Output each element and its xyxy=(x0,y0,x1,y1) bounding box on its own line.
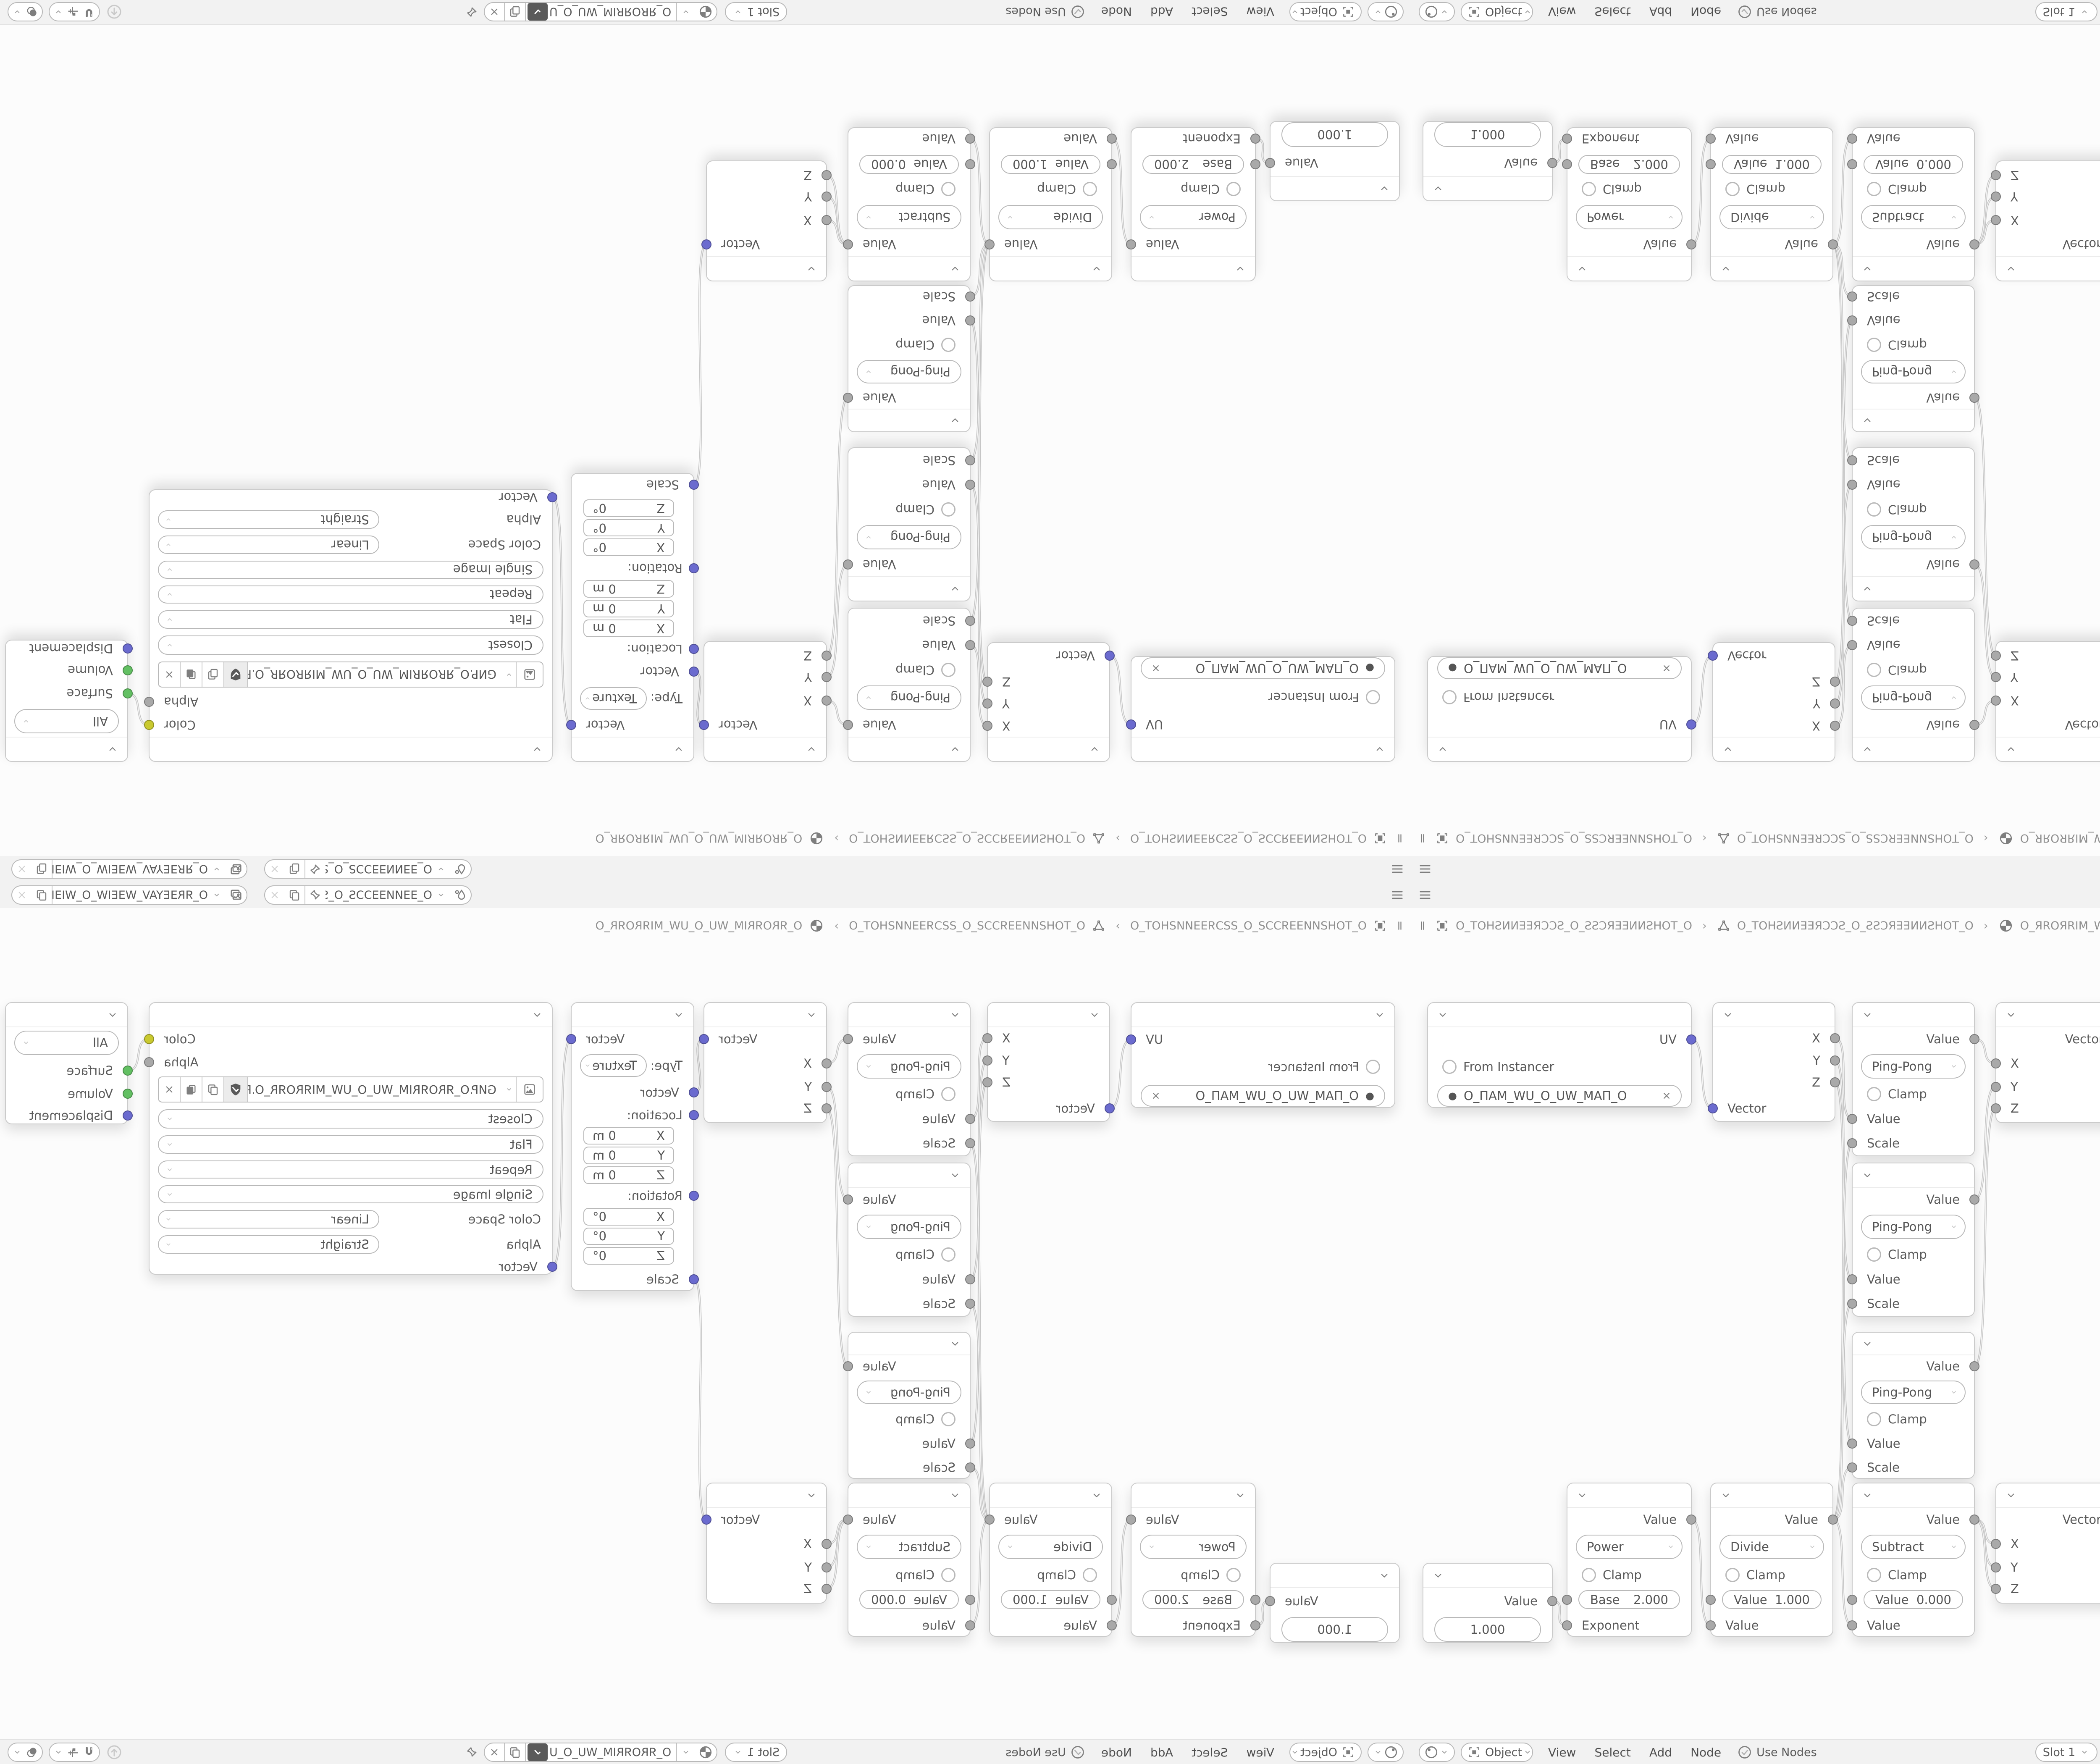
menu-node[interactable]: Node xyxy=(1101,5,1132,19)
node-collapse-chevron[interactable] xyxy=(1423,176,1552,200)
dropdown[interactable]: Ping-Pong xyxy=(1861,1215,1966,1239)
value-field[interactable]: 1.000 xyxy=(1434,122,1541,147)
copy-icon[interactable] xyxy=(202,1077,224,1102)
input-socket-exponent[interactable] xyxy=(1562,1620,1572,1630)
input-socket-scale[interactable] xyxy=(1847,1299,1857,1309)
output-socket-value[interactable] xyxy=(843,1361,853,1371)
dropdown[interactable]: All xyxy=(14,1031,119,1055)
auto-render-icon[interactable] xyxy=(106,1744,123,1761)
input-socket-y[interactable] xyxy=(1991,1082,2001,1092)
value-field[interactable]: Value0.000 xyxy=(859,1590,959,1609)
output-socket-x[interactable] xyxy=(1830,721,1840,731)
checkbox[interactable] xyxy=(941,1087,955,1101)
copy-icon[interactable] xyxy=(31,860,52,878)
node-collapse-chevron[interactable] xyxy=(1713,1003,1835,1027)
input-socket-scale[interactable] xyxy=(1847,455,1857,465)
dropdown[interactable]: Straight xyxy=(158,510,379,529)
output-socket-value[interactable] xyxy=(1828,1515,1838,1525)
checkbox[interactable] xyxy=(1442,1060,1457,1074)
vector-component-field[interactable]: X0° xyxy=(583,539,674,556)
close-icon[interactable] xyxy=(1661,1090,1681,1102)
shader-type-dropdown[interactable]: Object xyxy=(1461,2,1533,21)
math-divide-node[interactable]: ValueDivideClampValue1.000Value xyxy=(1710,127,1833,281)
node-collapse-chevron[interactable] xyxy=(1711,1483,1832,1508)
use-nodes-checkbox[interactable]: Use Nodes xyxy=(1737,4,1817,19)
material-name[interactable]: O_ЯROЯRIM_WU_O_UW_MIЯROЯR_O xyxy=(549,1743,677,1761)
checkbox[interactable] xyxy=(941,1412,955,1426)
dropdown[interactable]: Subtract xyxy=(1861,205,1966,229)
node-collapse-chevron[interactable] xyxy=(1853,1483,1974,1508)
overlays-control[interactable] xyxy=(8,2,43,21)
node-collapse-chevron[interactable] xyxy=(707,1483,826,1508)
input-socket-x[interactable] xyxy=(822,1058,832,1068)
output-socket-value[interactable] xyxy=(1686,239,1696,249)
uvmap-name-field[interactable]: ●O_ПAM_WU_O_UW_MAП_O xyxy=(1437,1085,1682,1107)
dropdown[interactable]: Texture xyxy=(580,687,647,710)
input-socket-valuein[interactable] xyxy=(1107,134,1117,144)
output-socket-value[interactable] xyxy=(1126,239,1136,249)
input-socket-x[interactable] xyxy=(1991,215,2001,225)
input-socket-valuein[interactable] xyxy=(965,1114,975,1124)
copy-icon[interactable] xyxy=(202,662,224,687)
math-subtract-node[interactable]: ValueSubtractClampValue0.000Value xyxy=(1852,127,1975,281)
chevron-down-icon[interactable] xyxy=(208,886,226,904)
checkbox[interactable] xyxy=(1867,1568,1881,1582)
checkbox[interactable] xyxy=(941,338,955,352)
output-socket-alpha[interactable] xyxy=(144,1057,154,1067)
input-socket-exponent[interactable] xyxy=(1250,134,1260,144)
value-field[interactable]: 1.000 xyxy=(1281,1617,1388,1642)
material-output-node[interactable]: AllSurfaceVolumeDisplacement xyxy=(5,1002,128,1124)
input-socket-base[interactable] xyxy=(1250,160,1260,170)
vector-component-field[interactable]: Z0 m xyxy=(583,580,674,598)
output-socket-y[interactable] xyxy=(982,699,992,709)
combine-xyz-node[interactable]: VectorXYZ xyxy=(703,1002,827,1123)
uvmap-name-field[interactable]: ●O_ПAM_WU_O_UW_MAП_O xyxy=(1141,657,1385,679)
input-socket-z[interactable] xyxy=(1991,170,2001,180)
output-socket-color[interactable] xyxy=(144,1034,154,1044)
dropdown[interactable]: Power xyxy=(1576,205,1683,229)
vector-component-field[interactable]: X0 m xyxy=(583,620,674,638)
vector-component-field[interactable]: Y0 m xyxy=(583,600,674,618)
combine-xyz-node[interactable]: VectorXYZ xyxy=(1995,1002,2100,1123)
pin-icon[interactable] xyxy=(305,860,325,878)
image-selector[interactable]: GИP.O_ЯROЯRIM_WU_O_UW_MIЯROЯR_O.PNG xyxy=(158,661,543,688)
vector-component-field[interactable]: Y0° xyxy=(583,520,674,537)
dropdown[interactable]: Ping-Pong xyxy=(1861,525,1966,549)
checkbox[interactable] xyxy=(1725,1568,1740,1582)
math-pingpong-node[interactable]: ValuePing-PongClampValueScale xyxy=(848,1163,971,1317)
dropdown[interactable]: Ping-Pong xyxy=(857,685,961,710)
node-collapse-chevron[interactable] xyxy=(1853,1163,1974,1188)
output-socket-value[interactable] xyxy=(1265,158,1275,168)
node-collapse-chevron[interactable] xyxy=(988,1003,1109,1027)
checkbox[interactable] xyxy=(1582,1568,1596,1582)
checkbox[interactable] xyxy=(1226,182,1241,197)
input-socket-valuein[interactable] xyxy=(965,1620,975,1630)
node-collapse-chevron[interactable] xyxy=(572,737,693,761)
uv-map-node[interactable]: UVFrom Instancer●O_ПAM_WU_O_UW_MAП_O xyxy=(1131,656,1395,762)
shader-type-dropdown[interactable]: Object xyxy=(1461,1743,1533,1762)
node-collapse-chevron[interactable] xyxy=(707,256,826,281)
dropdown[interactable]: Ping-Pong xyxy=(857,1381,961,1404)
dropdown[interactable]: Divide xyxy=(998,205,1103,229)
node-collapse-chevron[interactable] xyxy=(150,737,552,761)
input-socket-vector[interactable] xyxy=(1708,1103,1718,1113)
dropdown[interactable]: Single Image xyxy=(158,561,543,579)
input-socket-base[interactable] xyxy=(1250,1595,1260,1605)
input-socket-scale[interactable] xyxy=(1847,1138,1857,1148)
dropdown[interactable]: Ping-Pong xyxy=(857,360,961,383)
input-socket-displacement[interactable] xyxy=(123,1110,133,1121)
node-collapse-chevron[interactable] xyxy=(1428,1003,1691,1027)
chevron-down-icon[interactable] xyxy=(12,1747,23,1758)
output-socket-value[interactable] xyxy=(1969,1361,1979,1371)
dropdown[interactable]: Flat xyxy=(158,610,543,629)
copy-icon[interactable] xyxy=(284,860,305,878)
hamburger-menu-icon[interactable] xyxy=(1417,861,1433,877)
menu-view[interactable]: View xyxy=(1548,1746,1576,1759)
node-collapse-chevron[interactable] xyxy=(848,1333,970,1355)
checkbox[interactable] xyxy=(941,182,955,197)
input-socket-x[interactable] xyxy=(822,215,832,225)
math-pingpong-node[interactable]: ValuePing-PongClampValueScale xyxy=(848,608,971,762)
node-editor-canvas[interactable]: O_TOHƧИИƎƎЯƆƆƧ_O_ƧƧƆЯƎƎИИƧHOT_O › O_TOHƧ… xyxy=(0,908,1411,1739)
input-socket-valuein[interactable] xyxy=(965,1274,975,1284)
input-socket-x[interactable] xyxy=(1991,1539,2001,1549)
input-socket-valuein[interactable] xyxy=(1706,134,1716,144)
input-socket-volume[interactable] xyxy=(123,665,133,675)
input-socket-y[interactable] xyxy=(822,1562,832,1572)
fake-user-shield-icon[interactable] xyxy=(528,1743,548,1761)
input-socket-scale[interactable] xyxy=(689,1274,699,1284)
input-socket-scale[interactable] xyxy=(965,1462,975,1473)
output-socket-value[interactable] xyxy=(843,393,853,403)
node-collapse-chevron[interactable] xyxy=(1131,1483,1255,1508)
scene-datablock-selector[interactable]: O_ƎƎИИƎƎƆƆS_O_SSƆƆƎƎИ… xyxy=(264,859,472,879)
image-selector[interactable]: GИP.O_ЯROЯRIM_WU_O_UW_MIЯROЯR_O.PNG xyxy=(158,1076,543,1102)
checkbox[interactable] xyxy=(1725,182,1740,197)
output-socket-value[interactable] xyxy=(1686,1515,1696,1525)
node-collapse-chevron[interactable] xyxy=(1567,256,1691,281)
menu-node[interactable]: Node xyxy=(1101,1746,1132,1759)
copy-icon[interactable] xyxy=(505,1743,526,1761)
output-socket-value[interactable] xyxy=(1547,1596,1557,1606)
use-nodes-checkbox[interactable]: Use Nodes xyxy=(1005,1745,1085,1760)
input-socket-v1[interactable] xyxy=(1847,160,1857,170)
value-node[interactable]: Value1.000 xyxy=(1423,121,1553,201)
input-socket-scale[interactable] xyxy=(689,480,699,490)
dropdown[interactable]: Power xyxy=(1140,1535,1247,1559)
checkbox[interactable] xyxy=(1867,663,1881,677)
output-socket-vector[interactable] xyxy=(566,1034,576,1044)
menu-view[interactable]: View xyxy=(1548,5,1576,19)
close-icon[interactable] xyxy=(159,1077,181,1102)
node-collapse-chevron[interactable] xyxy=(848,1483,970,1508)
value-field[interactable]: 1.000 xyxy=(1434,1617,1541,1642)
output-socket-uv[interactable] xyxy=(1686,1034,1696,1045)
node-collapse-chevron[interactable] xyxy=(1996,1483,2100,1508)
output-socket-value[interactable] xyxy=(1969,1194,1979,1205)
input-socket-displacement[interactable] xyxy=(123,644,133,654)
input-socket-location[interactable] xyxy=(689,1110,699,1120)
input-socket-y[interactable] xyxy=(822,192,832,202)
close-icon[interactable] xyxy=(1142,662,1162,674)
node-collapse-chevron[interactable] xyxy=(1996,737,2100,761)
close-icon[interactable] xyxy=(1661,662,1681,674)
input-socket-valuein[interactable] xyxy=(1847,1620,1857,1630)
input-socket-exponent[interactable] xyxy=(1562,134,1572,144)
math-divide-node[interactable]: ValueDivideClampValue1.000Value xyxy=(1710,1483,1833,1637)
output-socket-value[interactable] xyxy=(1969,1515,1979,1525)
checkbox[interactable] xyxy=(1867,1087,1881,1101)
output-socket-value[interactable] xyxy=(843,1194,853,1205)
output-socket-value[interactable] xyxy=(1969,559,1979,570)
node-collapse-chevron[interactable] xyxy=(572,1003,693,1027)
input-socket-z[interactable] xyxy=(822,651,832,661)
shader-type-dropdown[interactable]: Object xyxy=(1289,2,1362,21)
material-output-node[interactable]: AllSurfaceVolumeDisplacement xyxy=(5,640,128,762)
dropdown[interactable]: Repeat xyxy=(158,585,543,604)
math-power-node[interactable]: ValuePowerClampBase2.000Exponent xyxy=(1567,127,1692,281)
output-socket-value[interactable] xyxy=(1969,720,1979,730)
grip-icon[interactable] xyxy=(1394,832,1406,845)
checkbox[interactable] xyxy=(1083,182,1097,197)
shader-type-dropdown[interactable]: Object xyxy=(1289,1743,1362,1762)
image-texture-node[interactable]: ColorAlpha GИP.O_ЯROЯRIM_WU_O_UW_MIЯROЯR… xyxy=(149,1002,553,1275)
close-icon[interactable] xyxy=(265,886,284,904)
input-socket-volume[interactable] xyxy=(123,1089,133,1099)
output-socket-value[interactable] xyxy=(984,1515,995,1525)
output-socket-value[interactable] xyxy=(843,559,853,570)
output-socket-x[interactable] xyxy=(982,1033,992,1043)
output-socket-vector[interactable] xyxy=(566,720,576,730)
editor-type-button[interactable] xyxy=(1368,2,1404,21)
output-socket-vector[interactable] xyxy=(701,1515,711,1525)
overlays-icon[interactable] xyxy=(25,5,39,18)
output-socket-value[interactable] xyxy=(843,720,853,730)
node-collapse-chevron[interactable] xyxy=(848,576,970,601)
dropdown[interactable]: Ping-Pong xyxy=(857,525,961,549)
input-socket-v1[interactable] xyxy=(1706,160,1716,170)
math-pingpong-node[interactable]: ValuePing-PongClampValueScale xyxy=(848,1002,971,1156)
separate-xyz-node[interactable]: XYZVector xyxy=(1712,1002,1835,1122)
input-socket-v1[interactable] xyxy=(1107,1595,1117,1605)
input-socket-y[interactable] xyxy=(1991,1562,2001,1572)
input-socket-valuein[interactable] xyxy=(1847,480,1857,490)
input-socket-rotation[interactable] xyxy=(689,563,699,573)
vector-component-field[interactable]: Y0° xyxy=(583,1228,674,1245)
grip-icon[interactable] xyxy=(1416,832,1429,845)
input-socket-vectorin[interactable] xyxy=(689,667,699,677)
output-socket-z[interactable] xyxy=(982,677,992,687)
checkbox[interactable] xyxy=(1867,1412,1881,1426)
node-collapse-chevron[interactable] xyxy=(1131,737,1394,761)
slot-dropdown[interactable]: Slot 1 xyxy=(2035,2,2097,21)
node-collapse-chevron[interactable] xyxy=(1713,737,1835,761)
snapping-control[interactable] xyxy=(49,2,100,21)
input-socket-y[interactable] xyxy=(822,1082,832,1092)
node-editor-canvas[interactable]: O_TOHƧИИƎƎЯƆƆƧ_O_ƧƧƆЯƎƎИИƧHOT_O › O_TOHƧ… xyxy=(0,25,1411,856)
input-socket-scale[interactable] xyxy=(965,455,975,465)
input-socket-z[interactable] xyxy=(822,170,832,180)
input-socket-base[interactable] xyxy=(1562,160,1572,170)
input-socket-v1[interactable] xyxy=(1847,1595,1857,1605)
node-collapse-chevron[interactable] xyxy=(848,256,970,281)
input-socket-scale[interactable] xyxy=(1847,291,1857,302)
math-pingpong-node[interactable]: ValuePing-PongClampValueScale xyxy=(848,285,971,432)
uvmap-name-field[interactable]: ●O_ПAM_WU_O_UW_MAП_O xyxy=(1437,657,1682,679)
menu-select[interactable]: Select xyxy=(1192,5,1228,19)
math-subtract-node[interactable]: ValueSubtractClampValue0.000Value xyxy=(848,127,971,281)
node-collapse-chevron[interactable] xyxy=(848,737,970,761)
magnet-icon[interactable] xyxy=(82,1746,96,1759)
math-power-node[interactable]: ValuePowerClampBase2.000Exponent xyxy=(1131,1483,1256,1637)
input-socket-vector[interactable] xyxy=(1105,651,1115,661)
output-socket-x[interactable] xyxy=(1830,1033,1840,1043)
input-socket-y[interactable] xyxy=(822,672,832,682)
output-socket-value[interactable] xyxy=(843,239,853,249)
uv-map-node[interactable]: UVFrom Instancer●O_ПAM_WU_O_UW_MAП_O xyxy=(1427,656,1692,762)
node-collapse-chevron[interactable] xyxy=(1270,1564,1399,1588)
input-socket-valuein[interactable] xyxy=(965,640,975,650)
close-icon[interactable] xyxy=(159,662,181,687)
math-divide-node[interactable]: ValueDivideClampValue1.000Value xyxy=(989,1483,1112,1637)
output-socket-y[interactable] xyxy=(982,1055,992,1066)
value-field[interactable]: Value0.000 xyxy=(1864,1590,1963,1609)
menu-node[interactable]: Node xyxy=(1690,1746,1721,1759)
dropdown[interactable]: Subtract xyxy=(857,205,961,229)
node-collapse-chevron[interactable] xyxy=(1567,1483,1691,1508)
input-socket-valuein[interactable] xyxy=(965,315,975,325)
input-socket-v1[interactable] xyxy=(965,1595,975,1605)
hamburger-menu-icon[interactable] xyxy=(1389,887,1405,903)
input-socket-scale[interactable] xyxy=(1847,1462,1857,1473)
image-icon[interactable] xyxy=(517,1077,543,1102)
value-node[interactable]: Value1.000 xyxy=(1270,1563,1400,1643)
node-collapse-chevron[interactable] xyxy=(1996,1003,2100,1027)
dropdown[interactable]: Closest xyxy=(158,635,543,655)
close-icon[interactable] xyxy=(485,1743,505,1761)
dropdown[interactable]: Subtract xyxy=(857,1535,961,1559)
math-pingpong-node[interactable]: ValuePing-PongClampValueScale xyxy=(1852,1002,1975,1156)
duplicate-icon[interactable] xyxy=(181,1077,202,1102)
mapping-node[interactable]: VectorType:TextureVectorLocation:X0 mY0 … xyxy=(571,1002,694,1291)
pin-icon[interactable] xyxy=(465,1746,479,1759)
dropdown[interactable]: Linear xyxy=(158,1210,379,1228)
node-editor-canvas[interactable]: O_TOHƧИИƎƎЯƆƆƧ_O_ƧƧƆЯƎƎИИƧHOT_O › O_TOHƧ… xyxy=(1411,908,2100,1739)
value-field[interactable]: Base2.000 xyxy=(1142,155,1244,174)
input-socket-valuein[interactable] xyxy=(965,480,975,490)
slot-dropdown[interactable]: Slot 1 xyxy=(2035,1743,2097,1762)
dropdown[interactable]: Subtract xyxy=(1861,1535,1966,1559)
node-collapse-chevron[interactable] xyxy=(990,256,1111,281)
input-socket-scale[interactable] xyxy=(965,1299,975,1309)
chevron-down-icon[interactable] xyxy=(432,886,450,904)
input-socket-z[interactable] xyxy=(1991,651,2001,661)
hamburger-menu-icon[interactable] xyxy=(1417,887,1433,903)
node-collapse-chevron[interactable] xyxy=(6,737,127,761)
input-socket-scale[interactable] xyxy=(965,616,975,626)
math-pingpong-node[interactable]: ValuePing-PongClampValueScale xyxy=(1852,1163,1975,1317)
copy-icon[interactable] xyxy=(505,3,526,21)
close-icon[interactable] xyxy=(485,3,505,21)
node-editor-canvas[interactable]: O_TOHƧИИƎƎЯƆƆƧ_O_ƧƧƆЯƎƎИИƧHOT_O › O_TOHƧ… xyxy=(1411,25,2100,856)
input-socket-scale[interactable] xyxy=(965,291,975,302)
math-subtract-node[interactable]: ValueSubtractClampValue0.000Value xyxy=(848,1483,971,1637)
dropdown[interactable]: Ping-Pong xyxy=(1861,360,1966,383)
output-socket-value[interactable] xyxy=(843,1515,853,1525)
combine-xyz-node[interactable]: VectorXYZ xyxy=(1995,1483,2100,1604)
input-socket-rotation[interactable] xyxy=(689,1191,699,1201)
combine-xyz-node[interactable]: VectorXYZ xyxy=(706,160,827,281)
dropdown[interactable]: Ping-Pong xyxy=(857,1215,961,1239)
output-socket-vector[interactable] xyxy=(699,1034,709,1044)
copy-icon[interactable] xyxy=(31,886,52,904)
math-pingpong-node[interactable]: ValuePing-PongClampValueScale xyxy=(1852,1332,1975,1479)
value-field[interactable]: Value1.000 xyxy=(1722,155,1822,174)
uvmap-name-field[interactable]: ●O_ПAM_WU_O_UW_MAП_O xyxy=(1141,1085,1385,1107)
output-socket-value[interactable] xyxy=(1828,239,1838,249)
dropdown[interactable]: Divide xyxy=(1719,205,1824,229)
chevron-down-icon[interactable] xyxy=(53,6,64,17)
input-socket-x[interactable] xyxy=(1991,696,2001,706)
uv-map-node[interactable]: UVFrom Instancer●O_ПAM_WU_O_UW_MAП_O xyxy=(1131,1002,1395,1108)
input-socket-vector[interactable] xyxy=(1708,651,1718,661)
value-field[interactable]: Value1.000 xyxy=(1722,1590,1822,1609)
separate-xyz-node[interactable]: XYZVector xyxy=(1712,642,1835,762)
chevron-down-icon[interactable] xyxy=(53,1747,64,1758)
checkbox[interactable] xyxy=(941,502,955,517)
input-socket-vector[interactable] xyxy=(547,492,557,502)
input-socket-v1[interactable] xyxy=(1107,160,1117,170)
chevron-down-icon[interactable] xyxy=(677,3,695,21)
pin-icon[interactable] xyxy=(465,5,479,18)
checkbox[interactable] xyxy=(1867,182,1881,197)
input-socket-valuein[interactable] xyxy=(1847,1274,1857,1284)
input-socket-valuein[interactable] xyxy=(965,1438,975,1449)
output-socket-uv[interactable] xyxy=(1126,719,1136,730)
input-socket-valuein[interactable] xyxy=(1847,640,1857,650)
input-socket-exponent[interactable] xyxy=(1250,1620,1260,1630)
chevron-down-icon[interactable] xyxy=(208,860,226,878)
menu-add[interactable]: Add xyxy=(1649,1746,1672,1759)
node-collapse-chevron[interactable] xyxy=(1853,576,1974,601)
node-collapse-chevron[interactable] xyxy=(150,1003,552,1027)
image-icon[interactable] xyxy=(517,662,543,687)
fake-user-shield-icon[interactable] xyxy=(224,1077,248,1102)
menu-add[interactable]: Add xyxy=(1150,5,1173,19)
dropdown[interactable]: Texture xyxy=(580,1054,647,1077)
vector-component-field[interactable]: Y0 m xyxy=(583,1147,674,1164)
checkbox[interactable] xyxy=(1366,1060,1380,1074)
dropdown[interactable]: Linear xyxy=(158,535,379,554)
input-socket-x[interactable] xyxy=(822,1539,832,1549)
value-node[interactable]: Value1.000 xyxy=(1270,121,1400,201)
checkbox[interactable] xyxy=(941,1247,955,1262)
vector-component-field[interactable]: X0° xyxy=(583,1208,674,1226)
menu-add[interactable]: Add xyxy=(1649,5,1672,19)
output-socket-vector[interactable] xyxy=(699,720,709,730)
image-datablock-selector[interactable]: O_ЯRƎEYAV_WƎEIW_O_WIƎEW_VAYƎERR_O xyxy=(11,859,247,879)
combine-xyz-node[interactable]: VectorXYZ xyxy=(703,641,827,762)
math-pingpong-node[interactable]: ValuePing-PongClampValueScale xyxy=(1852,608,1975,762)
value-field[interactable]: 1.000 xyxy=(1281,122,1388,147)
input-socket-v1[interactable] xyxy=(1706,1595,1716,1605)
math-subtract-node[interactable]: ValueSubtractClampValue0.000Value xyxy=(1852,1483,1975,1637)
value-field[interactable]: Value0.000 xyxy=(1864,155,1963,174)
node-collapse-chevron[interactable] xyxy=(848,1163,970,1188)
